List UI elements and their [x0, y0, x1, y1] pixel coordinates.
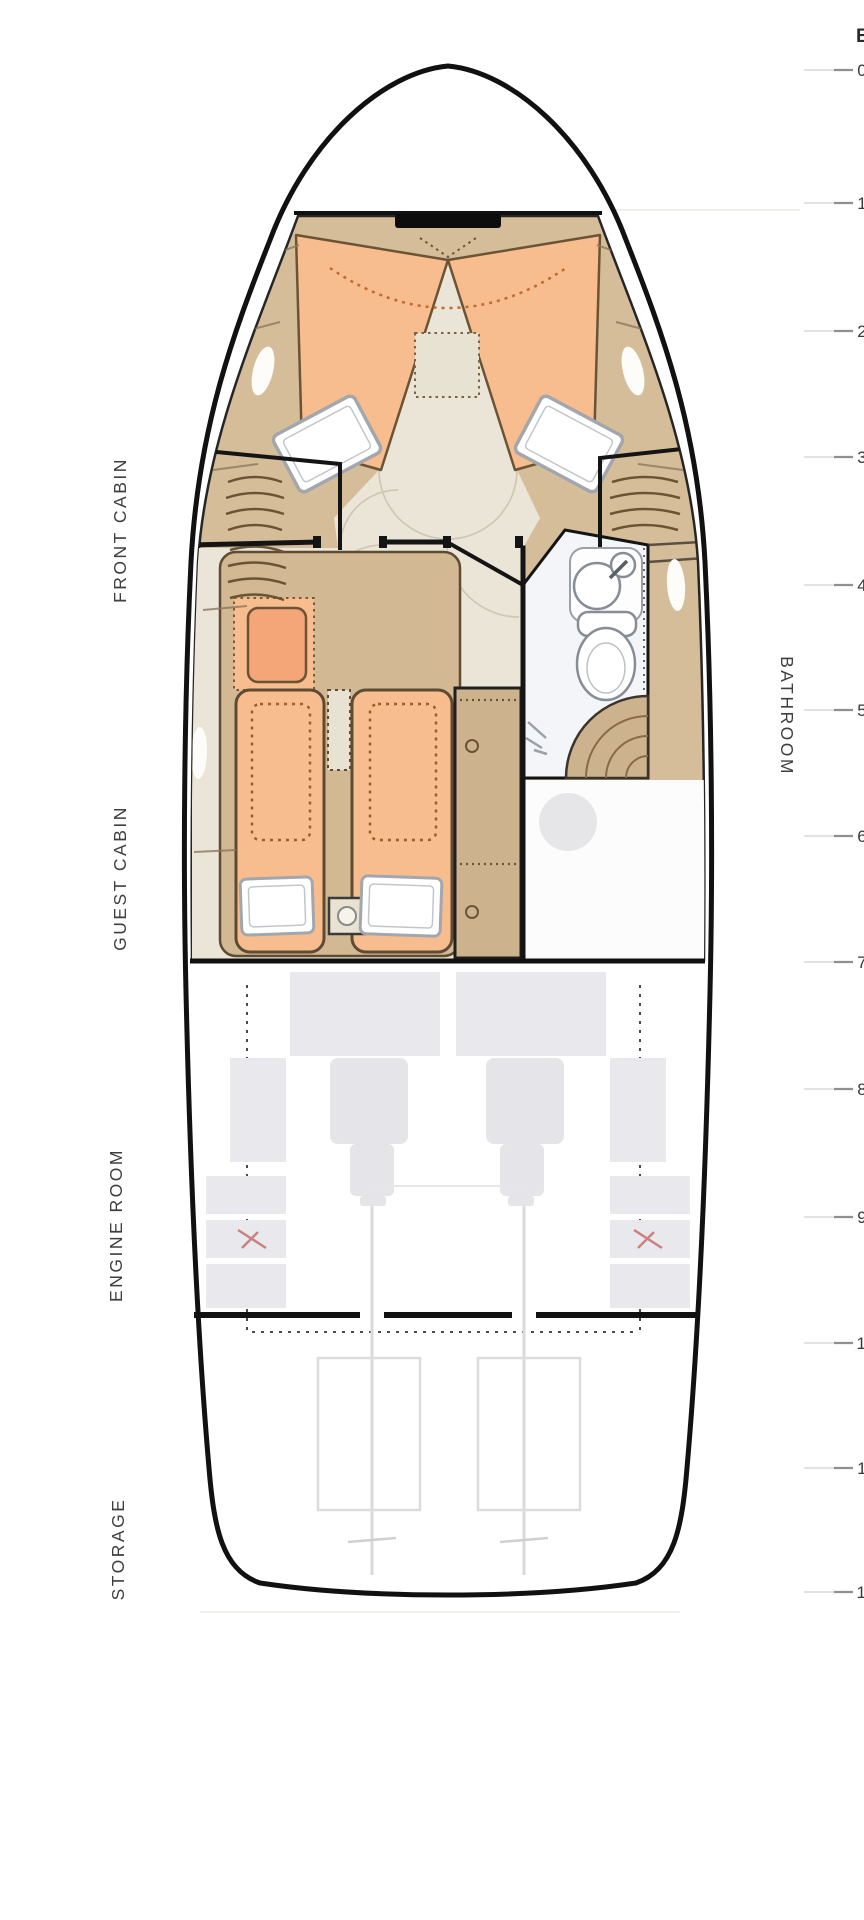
guest-side-cabinet — [455, 688, 521, 958]
ruler-faint-lines — [804, 70, 834, 1592]
room-label-bathroom: BATHROOM — [777, 656, 797, 776]
ruler-number: 9 — [857, 1208, 864, 1227]
ruler-number: 2 — [857, 322, 864, 341]
bathroom-room — [523, 530, 648, 778]
ruler-number: 10 — [857, 1334, 864, 1353]
ruler-ticks — [834, 70, 853, 1592]
center-dotted-locker — [415, 333, 479, 397]
floorplan-canvas: FRONT CABIN GUEST CABIN ENGINE ROOM STOR… — [0, 0, 864, 1920]
pillow-guest-left — [240, 877, 314, 935]
toilet-bowl-icon — [577, 628, 635, 700]
scale-ruler: E 0 1 2 3 4 5 6 7 8 — [804, 26, 864, 1602]
ruler-number: 0 — [857, 61, 864, 80]
room-label-storage: STORAGE — [108, 1498, 128, 1601]
ruler-number: 1 — [857, 194, 864, 213]
guest-seat — [248, 608, 306, 682]
ruler-number: 7 — [857, 953, 864, 972]
ruler-unit-label: E — [856, 26, 864, 47]
ruler-number: 11 — [857, 1459, 864, 1478]
muffler-box-right — [456, 972, 606, 1056]
ruler-number: 6 — [857, 827, 864, 846]
ruler-numbers: 0 1 2 3 4 5 6 7 8 9 10 11 12 — [857, 61, 864, 1602]
muffler-box-left — [290, 972, 440, 1056]
bow-hatch — [395, 214, 501, 228]
ruler-number: 12 — [857, 1583, 864, 1602]
room-label-front-cabin: FRONT CABIN — [110, 457, 130, 603]
ruler-number: 5 — [857, 701, 864, 720]
water-heater — [539, 793, 597, 851]
ruler-number: 8 — [857, 1080, 864, 1099]
ruler-number: 3 — [857, 448, 864, 467]
cup-holder — [338, 907, 356, 925]
ruler-number: 4 — [857, 576, 864, 595]
room-label-guest-cabin: GUEST CABIN — [110, 805, 130, 951]
berth-infill-cushion — [328, 690, 350, 770]
pillow-guest-right — [360, 876, 442, 937]
room-label-engine-room: ENGINE ROOM — [106, 1148, 126, 1302]
